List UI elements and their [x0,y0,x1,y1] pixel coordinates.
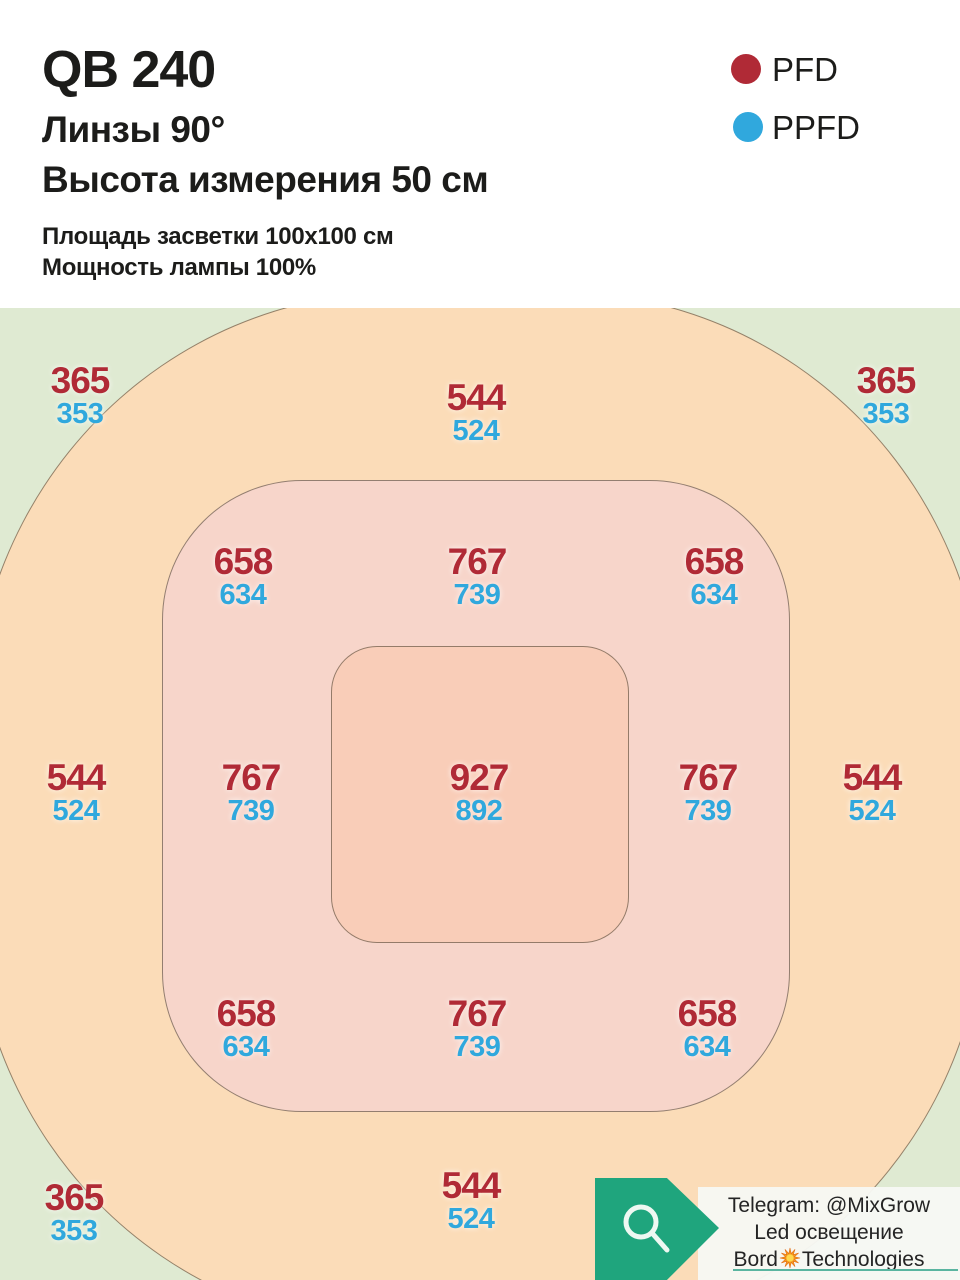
power-detail: Мощность лампы 100% [42,254,316,282]
watermark-panel: Telegram: @MixGrow Led освещение BordTec… [698,1187,960,1280]
brand-suffix: Technologies [802,1248,925,1271]
burst-emoji-icon [779,1247,801,1269]
ppfd-value: 739 [448,1032,507,1064]
header: QB 240 Линзы 90° Высота измерения 50 см … [0,0,960,308]
ppfd-value: 524 [843,796,902,828]
pfd-legend-dot-icon [731,54,761,84]
value-cell-mid-far-right: 544 524 [843,759,902,828]
ppfd-value: 634 [678,1032,737,1064]
ppfd-value: 524 [47,796,106,828]
value-cell-top-left: 365 353 [51,362,110,431]
value-cell-ring-bottom-right: 658 634 [678,995,737,1064]
value-cell-bottom-left: 365 353 [45,1179,104,1248]
light-distribution-map: 365 353 544 524 365 353 658 634 767 739 … [0,308,960,1280]
pfd-value: 658 [214,543,273,580]
pfd-value: 365 [857,362,916,399]
pfd-legend-label: PFD [772,51,838,89]
brand-prefix: Bord [734,1248,778,1271]
value-cell-mid-far-left: 544 524 [47,759,106,828]
pfd-value: 767 [448,995,507,1032]
telegram-handle: Telegram: @MixGrow [698,1192,960,1219]
value-cell-ring-top-center: 767 739 [448,543,507,612]
value-cell-ring-bottom-center: 767 739 [448,995,507,1064]
value-cell-top-right: 365 353 [857,362,916,431]
pfd-value: 658 [217,995,276,1032]
ppfd-value: 739 [222,796,281,828]
watermark-text: Telegram: @MixGrow Led освещение BordTec… [698,1192,960,1273]
measure-height-subtitle: Высота измерения 50 см [42,159,488,201]
pfd-value: 544 [843,759,902,796]
value-cell-mid-right: 767 739 [679,759,738,828]
ppfd-value: 353 [45,1216,104,1248]
ppfd-legend-dot-icon [733,112,763,142]
value-cell-top-center: 544 524 [447,379,506,448]
watermark-underline [733,1269,958,1271]
ppfd-value: 353 [51,399,110,431]
pfd-value: 767 [222,759,281,796]
pfd-value: 544 [447,379,506,416]
value-cell-ring-bottom-left: 658 634 [217,995,276,1064]
ppfd-value: 634 [217,1032,276,1064]
pfd-value: 767 [448,543,507,580]
area-detail: Площадь засветки 100x100 см [42,223,393,251]
value-cell-ring-top-left: 658 634 [214,543,273,612]
pfd-value: 658 [678,995,737,1032]
ppfd-value: 634 [685,580,744,612]
ppfd-value: 524 [442,1204,501,1236]
watermark-subtitle: Led освещение [698,1219,960,1246]
ppfd-value: 739 [448,580,507,612]
pfd-value: 544 [442,1167,501,1204]
pfd-value: 365 [51,362,110,399]
lens-subtitle: Линзы 90° [42,109,225,151]
ppfd-legend-label: PPFD [772,109,860,147]
pfd-value: 658 [685,543,744,580]
ppfd-value: 353 [857,399,916,431]
pfd-value: 767 [679,759,738,796]
pfd-value: 927 [450,759,509,796]
ppfd-value: 739 [679,796,738,828]
page-title: QB 240 [42,40,215,100]
ppfd-value: 892 [450,796,509,828]
value-cell-mid-left: 767 739 [222,759,281,828]
value-cell-center: 927 892 [450,759,509,828]
value-cell-ring-top-right: 658 634 [685,543,744,612]
pfd-value: 544 [47,759,106,796]
value-cell-bottom-center: 544 524 [442,1167,501,1236]
ppfd-value: 524 [447,416,506,448]
pfd-value: 365 [45,1179,104,1216]
ppfd-value: 634 [214,580,273,612]
